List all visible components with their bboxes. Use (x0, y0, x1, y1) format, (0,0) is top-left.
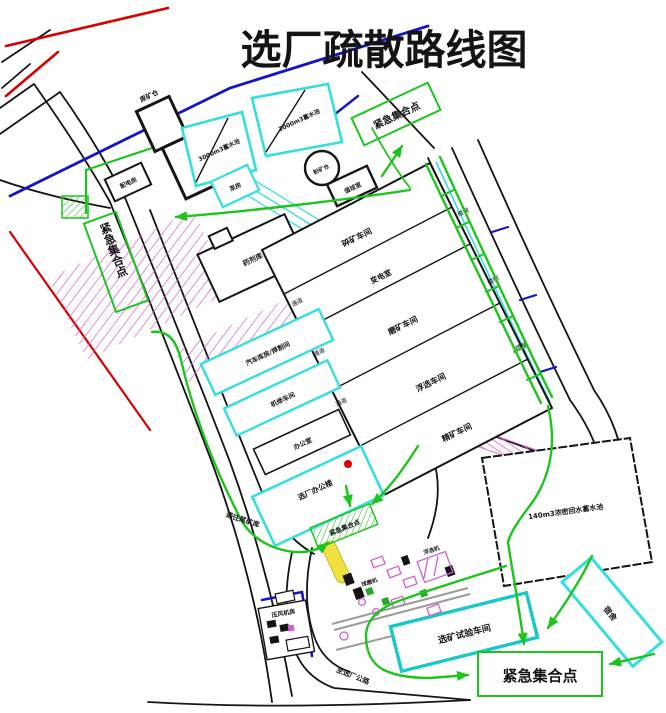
building-dorm: 宿舍 (562, 558, 662, 667)
red-line-top (6, 8, 168, 46)
map-drawing: 原矿仓 3000m3蓄水池 3000m3蓄水池 泵房 配电房 粉矿仓 值班室 化… (0, 0, 666, 713)
blue-dash-2 (520, 295, 536, 300)
road-bottom-edge (148, 700, 470, 706)
blue-dash-1 (492, 227, 508, 232)
red-dot (344, 460, 352, 468)
label-road-to-plant: 至选厂公路 (335, 665, 372, 687)
road-topleft-b (2, 64, 30, 88)
assembly-point-bottom: 紧急集合点 (478, 652, 602, 696)
label-ball-mill: 球磨机 (360, 576, 379, 589)
green-pen (62, 196, 88, 218)
building-thickener-pond: 140m3浓密回水蓄水池 (482, 438, 652, 586)
label-road-to-tailings: 通往尾矿库 (225, 510, 261, 529)
compressor-area: 压风机房 (258, 600, 314, 660)
red-roads (6, 8, 168, 430)
blue-dash-3 (540, 367, 556, 372)
page-title: 选厂疏散路线图 (241, 26, 528, 74)
red-line-top2 (6, 52, 58, 96)
route-assembly-link (372, 128, 410, 188)
label-assembly-bottom: 紧急集合点 (502, 667, 577, 685)
assembly-point-top: 紧急集合点 (352, 83, 441, 146)
compressor-sign (275, 590, 295, 604)
evacuation-map: 原矿仓 3000m3蓄水池 3000m3蓄水池 泵房 配电房 粉矿仓 值班室 化… (0, 0, 666, 713)
